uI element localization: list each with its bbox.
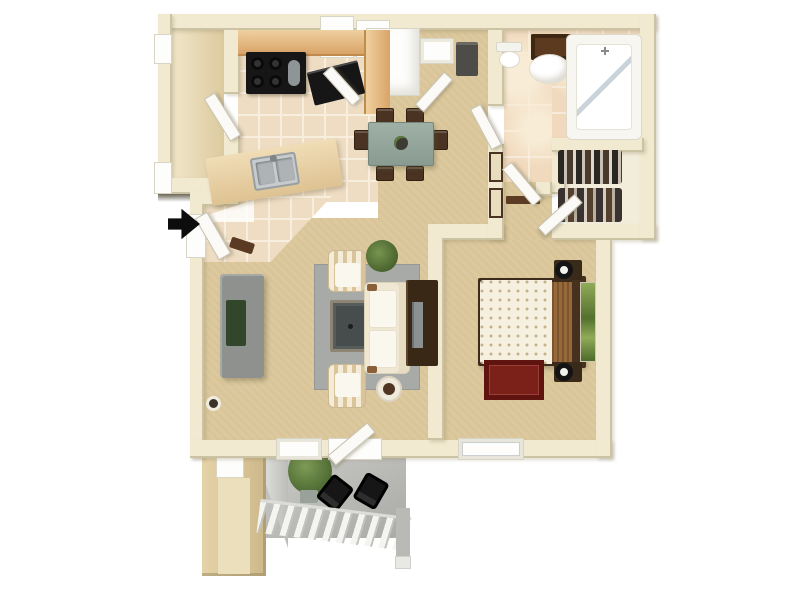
dining-window [420, 38, 454, 64]
bathtub-shower [566, 34, 642, 140]
patio-nook-inner [218, 478, 250, 574]
patio-pillar [396, 508, 410, 558]
wall-bedroom-east [596, 240, 612, 458]
toilet-bowl [499, 51, 520, 68]
wall-south-exterior [190, 440, 612, 458]
stove-burner [269, 57, 282, 70]
bed-comforter [480, 280, 552, 364]
tv-armoire [406, 280, 438, 366]
floor-plan-render [0, 0, 800, 600]
shower-head-icon [601, 47, 609, 55]
bathtub-inner [576, 44, 632, 130]
living-window [276, 438, 322, 460]
armchair-cushion [335, 263, 360, 287]
stove-burner [269, 75, 282, 88]
dining-chair [406, 166, 424, 181]
table-lamp [555, 261, 573, 279]
wall-art-green [580, 282, 596, 362]
patio-nook-niche [216, 456, 244, 478]
sofa-arm-accent [367, 366, 377, 373]
sofa-arm-accent [367, 284, 377, 291]
side-table [376, 376, 402, 402]
television [412, 302, 423, 348]
stove-burner [251, 75, 264, 88]
utility-niche-window [154, 34, 172, 64]
storage-panel-door [489, 152, 503, 182]
sofa [364, 282, 410, 374]
stove-burner [251, 57, 264, 70]
stove-platter [288, 60, 300, 86]
table-centerpiece-plant [394, 136, 408, 150]
patio-plant-pot [300, 490, 318, 503]
utility-niche-window [154, 162, 172, 194]
living-plant [366, 240, 398, 272]
bed-blanket [552, 282, 572, 362]
kitchen-counter-right [364, 30, 390, 114]
refrigerator-cabinet [456, 42, 478, 76]
accent-rug-red [484, 360, 544, 400]
striped-armchair [328, 250, 366, 292]
side-table-top [383, 383, 395, 395]
kitchen-sink [250, 151, 301, 191]
sink-basin [255, 160, 275, 185]
storage-panel-door [489, 188, 503, 218]
striped-armchair [328, 364, 366, 408]
dining-chair [354, 130, 369, 150]
console-green-tray [226, 300, 246, 346]
floor-decor-circle [206, 396, 221, 411]
dining-chair [376, 108, 394, 123]
armchair-cushion [335, 373, 360, 397]
wall-east-exterior [640, 14, 656, 240]
hanging-clothes [558, 150, 622, 184]
sink-basin [275, 157, 295, 182]
sofa-cushion [369, 290, 397, 328]
sofa-cushion [369, 330, 397, 368]
dining-chair [376, 166, 394, 181]
coffee-table-center-dot [348, 324, 353, 329]
dining-chair [433, 130, 448, 150]
range-stove [246, 52, 306, 94]
bedroom-window [458, 438, 524, 460]
table-lamp [555, 363, 573, 381]
pedestal-sink [529, 54, 570, 84]
patio-pillar-base [395, 556, 411, 569]
